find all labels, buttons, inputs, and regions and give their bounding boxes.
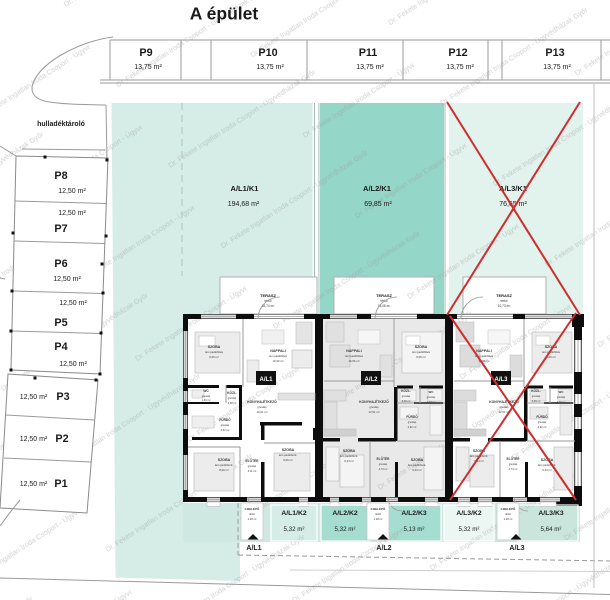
svg-text:9,06 m²: 9,06 m² xyxy=(416,355,426,359)
svg-text:greslap: greslap xyxy=(532,394,541,398)
svg-text:A/L3: A/L3 xyxy=(494,377,508,383)
svg-text:A épület: A épület xyxy=(190,4,259,24)
svg-text:P11: P11 xyxy=(359,47,378,59)
svg-text:1,28 m²: 1,28 m² xyxy=(504,517,513,521)
svg-text:hulladéktároló: hulladéktároló xyxy=(37,121,85,128)
svg-text:lam.padlóburk.: lam.padlóburk. xyxy=(215,463,234,467)
svg-text:1,28 m²: 1,28 m² xyxy=(374,517,383,521)
svg-text:terv.padlófűtés: terv.padlófűtés xyxy=(345,354,364,358)
svg-text:12,50 m²: 12,50 m² xyxy=(58,210,86,217)
svg-text:P4: P4 xyxy=(54,341,67,353)
svg-text:lam.padlóburk.: lam.padlóburk. xyxy=(279,453,298,457)
svg-text:TERASZ: TERASZ xyxy=(376,293,393,298)
svg-text:WC: WC xyxy=(559,390,565,394)
svg-text:NAPPALI: NAPPALI xyxy=(270,349,286,353)
svg-text:12,50 m²: 12,50 m² xyxy=(53,276,81,283)
svg-text:TERASZ: TERASZ xyxy=(496,293,513,298)
svg-text:9,24 m²: 9,24 m² xyxy=(344,459,354,463)
svg-text:1,28 m²: 1,28 m² xyxy=(248,517,257,521)
svg-text:terv.padlófűtés: terv.padlófűtés xyxy=(205,350,224,354)
svg-text:13,75 m²: 13,75 m² xyxy=(256,64,284,71)
svg-text:4,11 m²: 4,11 m² xyxy=(248,469,257,473)
svg-text:12,51 m²: 12,51 m² xyxy=(368,410,379,414)
svg-text:greslap: greslap xyxy=(202,394,211,398)
svg-text:greslap: greslap xyxy=(248,464,257,468)
svg-text:A/L1: A/L1 xyxy=(259,377,273,383)
svg-text:1,46 m²: 1,46 m² xyxy=(557,400,566,404)
svg-text:3,09 m²: 3,09 m² xyxy=(532,399,541,403)
svg-text:A/L2: A/L2 xyxy=(376,545,391,552)
svg-text:10,73 m²: 10,73 m² xyxy=(498,304,511,308)
svg-text:A/L3: A/L3 xyxy=(509,545,524,552)
svg-text:térkő: térkő xyxy=(249,512,255,516)
svg-text:térkő: térkő xyxy=(375,512,381,516)
svg-text:P2: P2 xyxy=(55,433,68,445)
svg-text:SZOBA: SZOBA xyxy=(218,458,231,462)
svg-text:P7: P7 xyxy=(54,223,67,235)
svg-text:SZOBA: SZOBA xyxy=(282,448,295,452)
svg-text:greslap: greslap xyxy=(257,405,267,409)
svg-text:A/L1/K2: A/L1/K2 xyxy=(281,510,307,517)
svg-text:9,24 m²: 9,24 m² xyxy=(412,468,422,472)
svg-text:12,50 m²: 12,50 m² xyxy=(20,394,48,401)
svg-text:4,68 m²: 4,68 m² xyxy=(228,401,237,405)
svg-text:SZOBA: SZOBA xyxy=(411,458,424,462)
svg-text:9,06 m²: 9,06 m² xyxy=(209,355,219,359)
svg-text:13,75 m²: 13,75 m² xyxy=(134,64,162,71)
svg-text:A/L2/K1: A/L2/K1 xyxy=(363,184,391,193)
svg-text:1,46 m²: 1,46 m² xyxy=(427,400,436,404)
svg-text:térkő: térkő xyxy=(500,299,507,303)
svg-text:4,73 m²: 4,73 m² xyxy=(509,467,518,471)
svg-text:ELŐTÉR: ELŐTÉR xyxy=(507,456,521,461)
svg-text:5,64 m²: 5,64 m² xyxy=(541,526,562,533)
svg-text:P12: P12 xyxy=(448,47,467,59)
svg-text:5,32 m²: 5,32 m² xyxy=(459,526,480,533)
svg-text:NAPPALI: NAPPALI xyxy=(346,349,362,353)
svg-text:greslap: greslap xyxy=(427,395,436,399)
svg-text:lam.padlóburk.: lam.padlóburk. xyxy=(340,454,359,458)
svg-text:FÜRDŐ: FÜRDŐ xyxy=(219,417,231,422)
svg-text:terv.padlófűtés: terv.padlófűtés xyxy=(412,350,431,354)
svg-text:A/L2/K3: A/L2/K3 xyxy=(401,510,427,517)
svg-text:greslap: greslap xyxy=(379,462,388,466)
svg-text:KÖZL.: KÖZL. xyxy=(227,390,237,395)
svg-text:A/L1/K1: A/L1/K1 xyxy=(231,184,259,193)
svg-text:A/L1: A/L1 xyxy=(246,545,261,552)
svg-text:P8: P8 xyxy=(54,170,67,182)
svg-text:9,06 m²: 9,06 m² xyxy=(283,458,293,462)
svg-text:12,50 m²: 12,50 m² xyxy=(20,436,48,443)
svg-text:16,56 m²: 16,56 m² xyxy=(348,359,359,363)
svg-text:greslap: greslap xyxy=(557,395,566,399)
svg-text:F.BELÉPŐ: F.BELÉPŐ xyxy=(245,506,260,511)
svg-text:NAPPALI: NAPPALI xyxy=(476,349,492,353)
svg-text:SZOBA: SZOBA xyxy=(343,449,356,453)
svg-text:A/L3/K2: A/L3/K2 xyxy=(456,510,482,517)
svg-text:194,68 m²: 194,68 m² xyxy=(228,201,260,208)
svg-text:greslap: greslap xyxy=(369,405,379,409)
svg-text:12,50 m²: 12,50 m² xyxy=(20,481,48,488)
svg-text:WC: WC xyxy=(203,389,209,393)
svg-text:12,50 m²: 12,50 m² xyxy=(58,188,86,195)
svg-text:P9: P9 xyxy=(139,47,152,59)
svg-text:greslap: greslap xyxy=(221,423,230,427)
svg-text:13,75 m²: 13,75 m² xyxy=(543,64,571,71)
svg-text:5,13 m²: 5,13 m² xyxy=(404,526,425,533)
svg-text:12,50 m²: 12,50 m² xyxy=(59,300,87,307)
svg-text:ELŐTÉR: ELŐTÉR xyxy=(377,456,391,461)
svg-text:greslap: greslap xyxy=(538,420,547,424)
svg-text:3,09 m²: 3,09 m² xyxy=(402,399,411,403)
svg-text:P6: P6 xyxy=(54,258,67,270)
svg-text:A/L3/K3: A/L3/K3 xyxy=(538,510,564,517)
svg-text:69,85 m²: 69,85 m² xyxy=(364,201,392,208)
svg-text:greslap: greslap xyxy=(228,396,237,400)
svg-text:P1: P1 xyxy=(54,478,67,490)
svg-text:A/L2: A/L2 xyxy=(364,377,378,383)
svg-text:4,92 m²: 4,92 m² xyxy=(408,425,417,429)
svg-text:1,60 m²: 1,60 m² xyxy=(202,398,211,402)
svg-text:lam.padlóburk.: lam.padlóburk. xyxy=(408,463,427,467)
svg-text:greslap: greslap xyxy=(499,405,509,409)
svg-text:FÜRDŐ: FÜRDŐ xyxy=(406,414,418,419)
svg-text:13,75 m²: 13,75 m² xyxy=(446,64,474,71)
svg-text:A/L2/K2: A/L2/K2 xyxy=(332,510,358,517)
svg-text:P10: P10 xyxy=(258,47,277,59)
svg-text:12,50 m²: 12,50 m² xyxy=(59,361,87,368)
svg-text:10,01 m²: 10,01 m² xyxy=(256,410,267,414)
svg-text:WC: WC xyxy=(429,390,435,394)
svg-text:terv.padlófűtés: terv.padlófűtés xyxy=(269,354,288,358)
svg-text:KONYHA-ÉTKEZŐ: KONYHA-ÉTKEZŐ xyxy=(247,399,277,404)
svg-text:P5: P5 xyxy=(54,317,67,329)
svg-text:KÖZL.: KÖZL. xyxy=(531,388,541,393)
svg-text:F.BELÉPŐ: F.BELÉPŐ xyxy=(501,506,516,511)
svg-text:4,92 m²: 4,92 m² xyxy=(538,425,547,429)
svg-text:P3: P3 xyxy=(56,391,69,403)
svg-text:térkő: térkő xyxy=(505,512,511,516)
svg-text:greslap: greslap xyxy=(408,420,417,424)
svg-text:9,24 m²: 9,24 m² xyxy=(542,468,552,472)
svg-text:FÜRDŐ: FÜRDŐ xyxy=(536,414,548,419)
svg-text:4,73 m²: 4,73 m² xyxy=(379,467,388,471)
svg-text:KONYHA-ÉTKEZŐ: KONYHA-ÉTKEZŐ xyxy=(359,399,389,404)
svg-text:5,32 m²: 5,32 m² xyxy=(284,526,305,533)
svg-text:greslap: greslap xyxy=(509,462,518,466)
svg-text:ELŐTÉR: ELŐTÉR xyxy=(246,458,260,463)
svg-text:8,09 m²: 8,09 m² xyxy=(219,468,229,472)
svg-text:4,92 m²: 4,92 m² xyxy=(221,428,230,432)
svg-text:SZOBA: SZOBA xyxy=(208,345,221,349)
svg-text:19,39 m²: 19,39 m² xyxy=(272,359,283,363)
svg-text:TERASZ: TERASZ xyxy=(260,293,277,298)
svg-text:13,75 m²: 13,75 m² xyxy=(356,64,384,71)
svg-text:SZOBA: SZOBA xyxy=(415,345,428,349)
svg-text:greslap: greslap xyxy=(402,394,411,398)
svg-text:5,32 m²: 5,32 m² xyxy=(335,526,356,533)
svg-text:F.BELÉPŐ: F.BELÉPŐ xyxy=(371,506,386,511)
svg-text:KÖZL.: KÖZL. xyxy=(401,388,411,393)
svg-text:P13: P13 xyxy=(545,47,564,59)
